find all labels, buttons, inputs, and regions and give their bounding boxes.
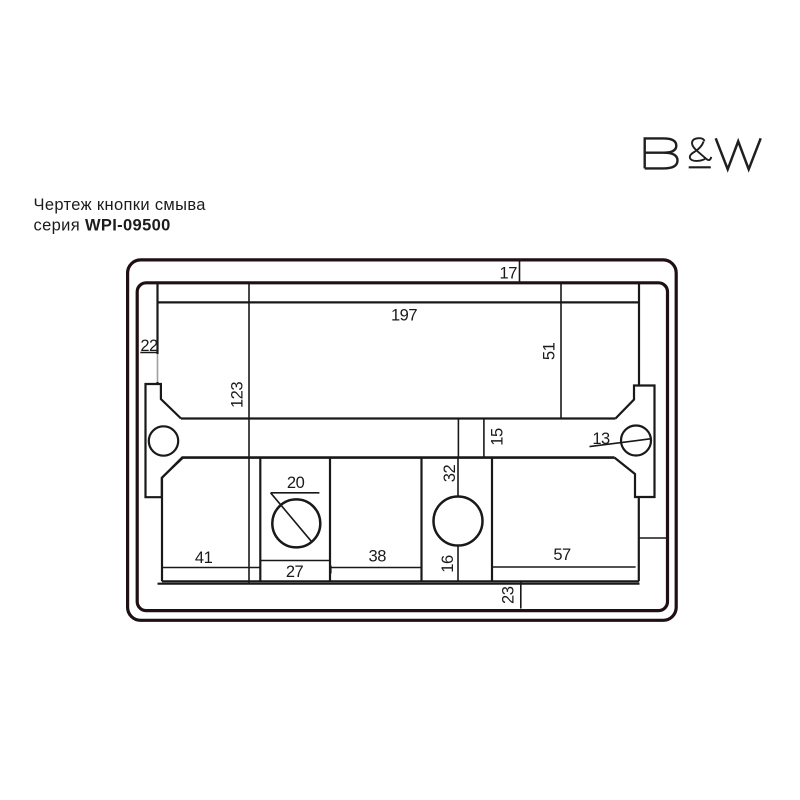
svg-text:23: 23 xyxy=(499,586,517,604)
svg-text:41: 41 xyxy=(195,549,213,567)
svg-text:27: 27 xyxy=(286,563,304,581)
svg-text:20: 20 xyxy=(287,474,305,492)
svg-text:17: 17 xyxy=(500,264,518,282)
svg-text:16: 16 xyxy=(439,555,457,573)
svg-text:22: 22 xyxy=(140,337,158,355)
svg-text:32: 32 xyxy=(441,465,459,483)
svg-text:197: 197 xyxy=(391,307,417,325)
svg-text:38: 38 xyxy=(369,548,387,566)
svg-text:123: 123 xyxy=(229,382,247,408)
svg-text:13: 13 xyxy=(592,430,610,448)
svg-text:серия WPI-09500: серия WPI-09500 xyxy=(34,217,171,235)
svg-text:57: 57 xyxy=(553,546,571,564)
svg-text:Чертеж кнопки смыва: Чертеж кнопки смыва xyxy=(34,196,207,214)
svg-text:51: 51 xyxy=(541,342,559,360)
svg-text:15: 15 xyxy=(489,428,507,446)
